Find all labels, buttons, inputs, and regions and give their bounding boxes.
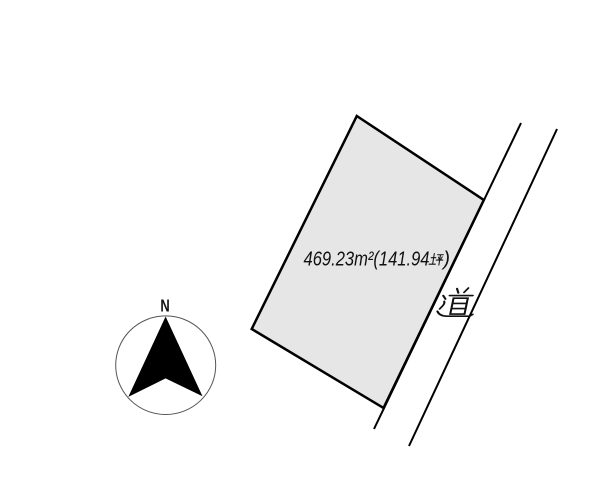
svg-text:469.23m²(141.94: 469.23m²(141.94 — [304, 249, 430, 271]
svg-text:): ) — [441, 249, 450, 271]
svg-text:N: N — [160, 297, 169, 317]
